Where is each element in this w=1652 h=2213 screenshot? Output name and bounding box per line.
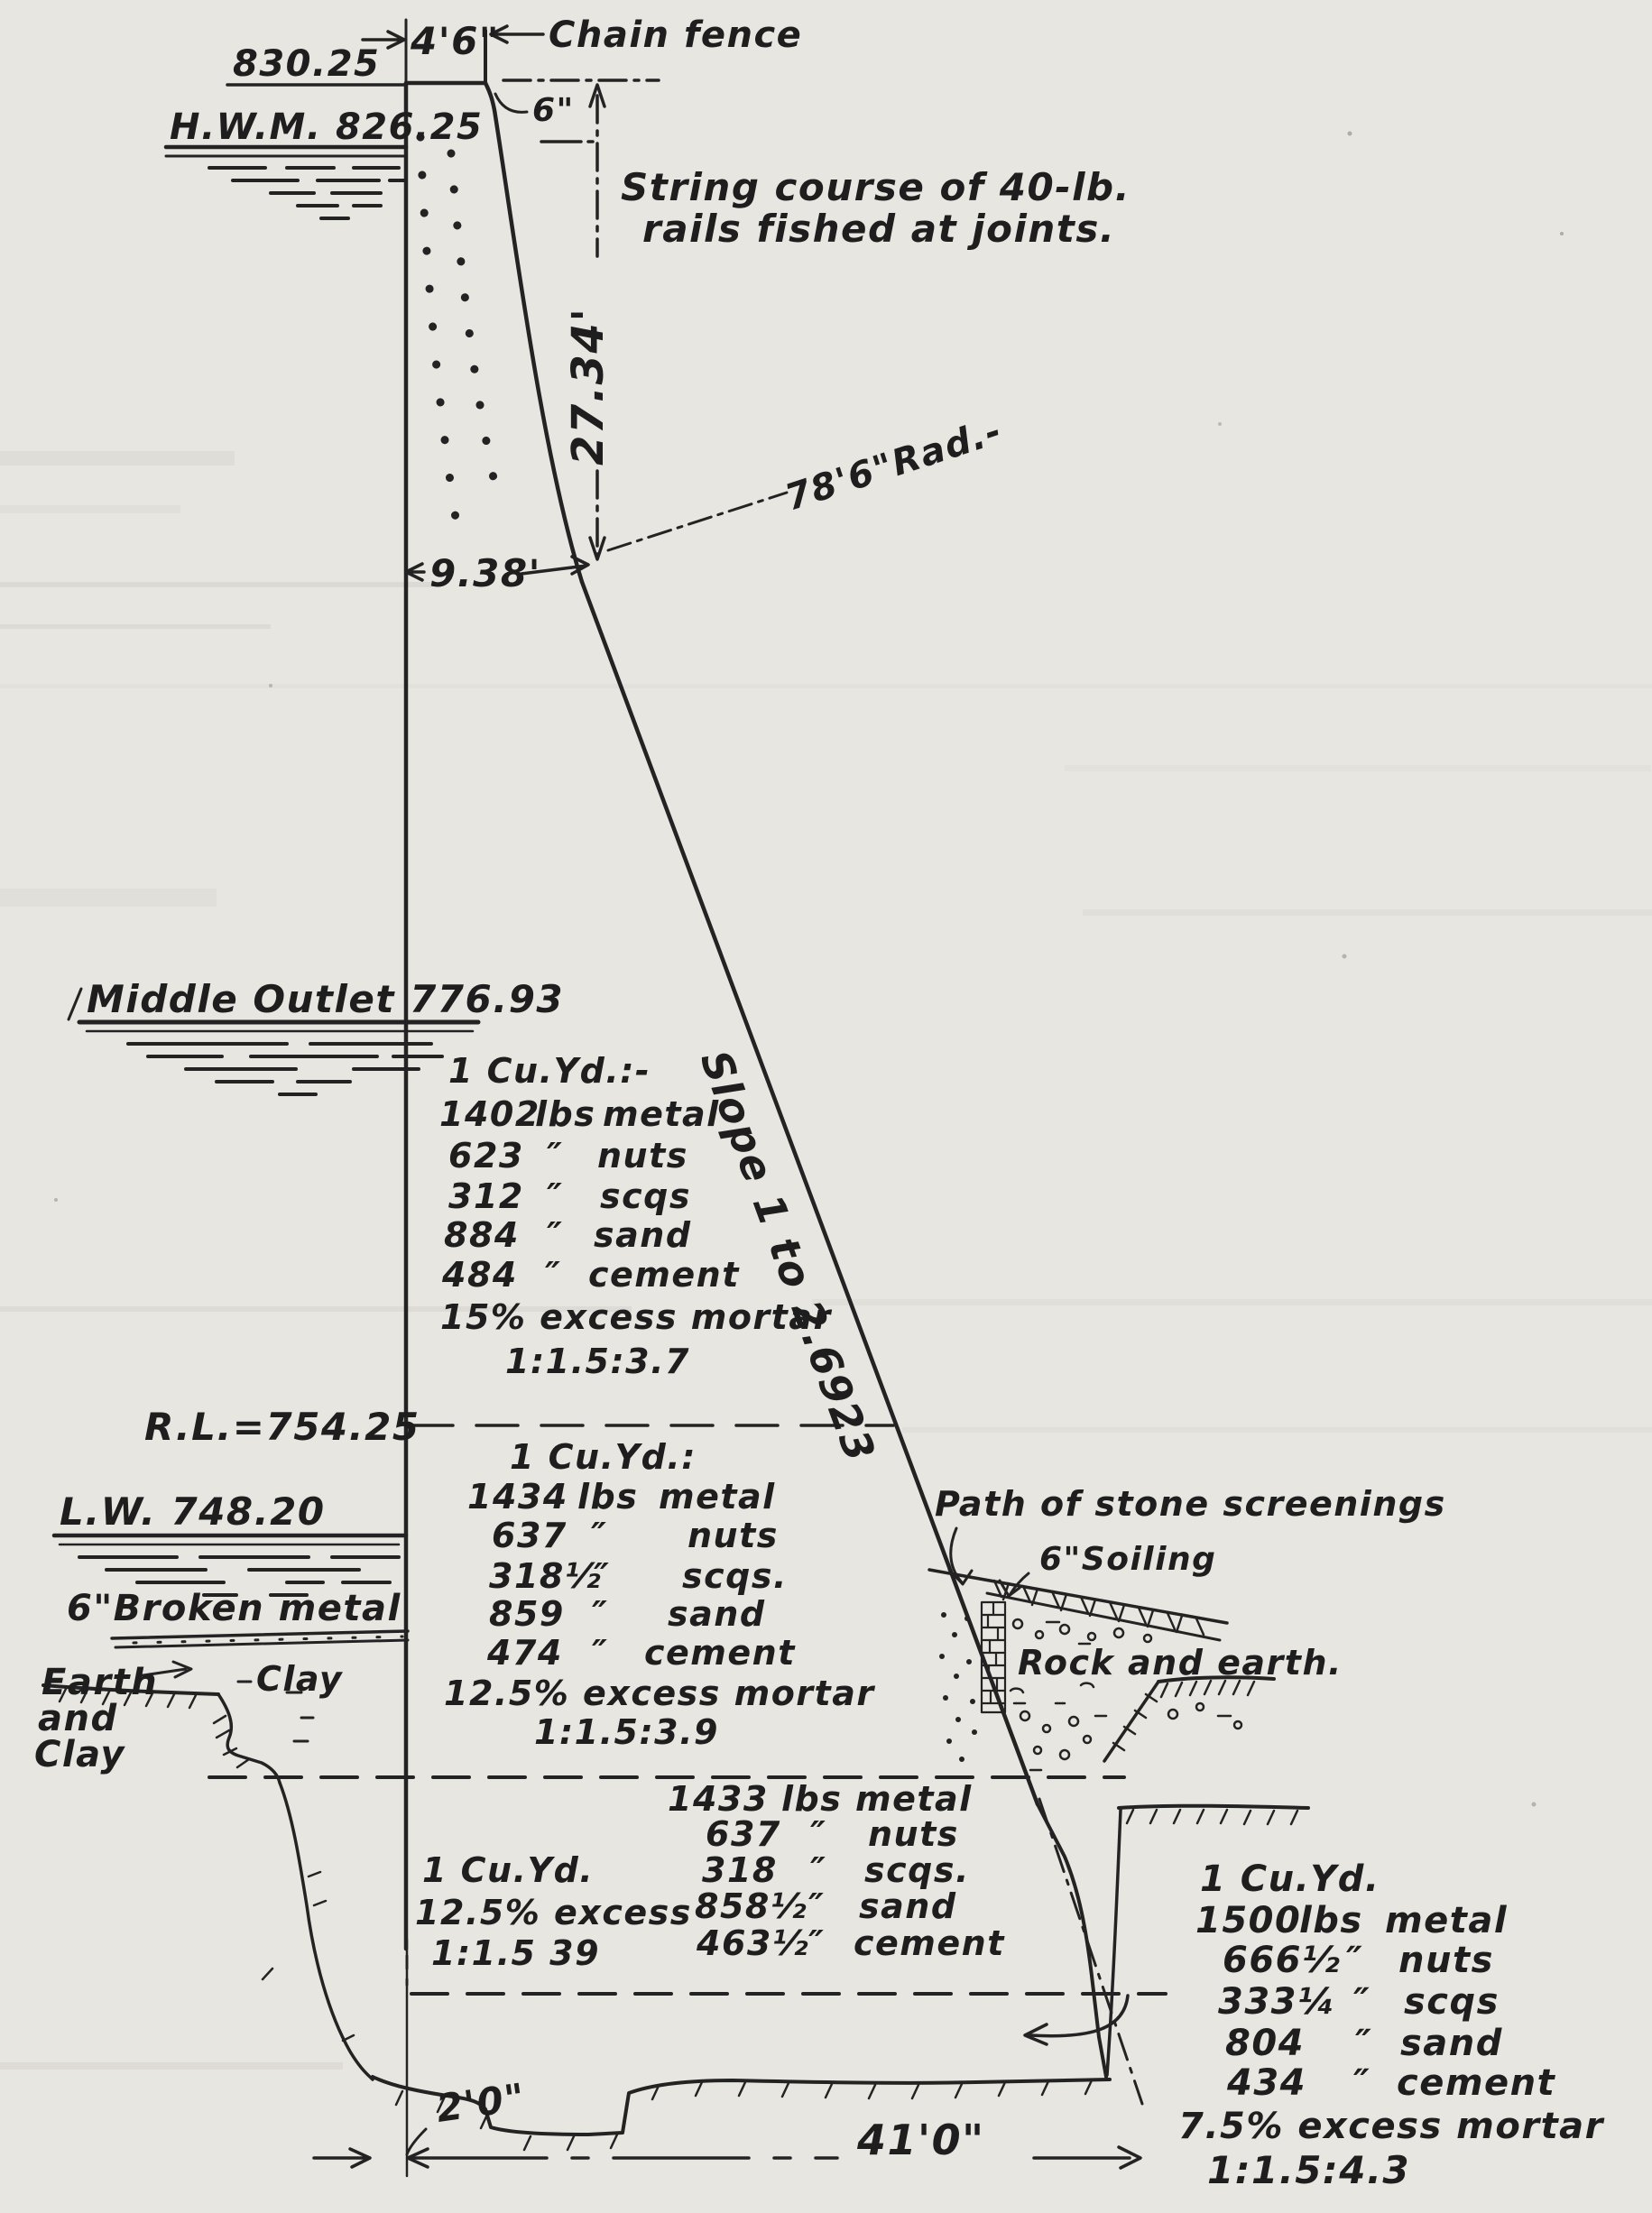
mix5-r2-qty: 333¼: [1218, 1981, 1336, 2023]
mix3-r3-qty: 858½: [695, 1886, 808, 1926]
mix1-r0-qty: 1402: [439, 1094, 540, 1134]
toe-right-ground: [1119, 1806, 1308, 1808]
mix2-r2-qty: 318½: [489, 1556, 602, 1596]
clay-label: Clay: [256, 1659, 344, 1699]
mix2-r0-unit: lbs: [577, 1477, 638, 1517]
mix1-r4-mat: cement: [588, 1255, 740, 1295]
mix1-r4-qty: 484: [441, 1255, 518, 1295]
mix5-r0-unit: lbs: [1299, 1900, 1363, 1941]
mix3-r4-unit: ″: [808, 1923, 825, 1963]
mix3-r1-mat: nuts: [868, 1814, 959, 1854]
rl-label: R.L.=754.25: [144, 1405, 420, 1449]
mix2-ratio: 1:1.5:3.9: [534, 1712, 719, 1752]
mix5-r0-mat: metal: [1385, 1900, 1508, 1941]
mix5-r3-mat: sand: [1400, 2023, 1503, 2064]
mix3-r0-qty: 1433: [668, 1779, 769, 1819]
mix1-r2-qty: 312: [448, 1176, 524, 1216]
mix1-ratio: 1:1.5:3.7: [505, 1342, 690, 1381]
mix3-r4-qty: 463½: [696, 1923, 809, 1963]
mix3-r2-qty: 318: [702, 1850, 778, 1890]
mix3-r3-unit: ″: [808, 1886, 825, 1926]
mix1-r0-unit: lbs: [535, 1094, 595, 1134]
mix2-r4-qty: 474: [486, 1633, 563, 1673]
mix2-r1-qty: 637: [492, 1516, 568, 1555]
mix5-r4-qty: 434: [1226, 2062, 1306, 2104]
mix1-r2-unit: ″: [547, 1176, 563, 1216]
six-inch-label: 6": [532, 92, 575, 129]
mix2-r3-mat: sand: [668, 1594, 766, 1634]
dam-cross-section-drawing: 830.25 H.W.M. 826.25 4'6" Chain fence 6"…: [0, 0, 1652, 2213]
mix1-r3-qty: 884: [444, 1215, 520, 1255]
mix1-r3-mat: sand: [594, 1215, 692, 1255]
mix3-r2-mat: scqs.: [864, 1850, 970, 1890]
rock-earth-label: Rock and earth.: [1018, 1643, 1343, 1683]
string-course-label-2: rails fished at joints.: [642, 207, 1115, 251]
mix4-title: 1 Cu.Yd.: [422, 1850, 594, 1890]
elev-crest-label: 830.25: [233, 43, 380, 85]
mix1-r4-unit: ″: [545, 1255, 561, 1295]
mix2-r0-qty: 1434: [467, 1477, 568, 1517]
crest-width-label: 4'6": [410, 19, 500, 63]
lw-label: L.W. 748.20: [60, 1489, 326, 1534]
mix2-r1-unit: ″: [591, 1516, 607, 1555]
chain-fence-label: Chain fence: [549, 14, 802, 56]
mix4-excess: 12.5% excess: [415, 1893, 692, 1932]
mix2-r4-mat: cement: [644, 1633, 796, 1673]
mix3-r2-unit: ″: [810, 1850, 826, 1890]
mix5-title: 1 Cu.Yd.: [1200, 1858, 1380, 1900]
string-course-label-1: String course of 40-lb.: [621, 165, 1131, 209]
mix1-r2-mat: scqs: [600, 1176, 691, 1216]
mix5-excess: 7.5% excess mortar: [1178, 2106, 1605, 2147]
hwm-label: H.W.M. 826.25: [170, 106, 483, 148]
mix2-title: 1 Cu.Yd.:: [510, 1437, 697, 1477]
middle-outlet-label: Middle Outlet 776.93: [87, 977, 564, 1021]
mix5-r2-unit: ″: [1353, 1981, 1371, 2023]
mix5-r1-unit: ″: [1346, 1940, 1363, 1981]
mix2-r3-qty: 859: [489, 1594, 565, 1634]
mix5-r4-mat: cement: [1397, 2062, 1556, 2104]
soiling-label: 6"Soiling: [1039, 1541, 1216, 1578]
mix3-r0-mat: metal: [855, 1779, 973, 1819]
mix3-r0-unit: lbs: [781, 1779, 842, 1819]
mix4-ratio: 1:1.5 39: [431, 1933, 600, 1973]
mix2-r0-mat: metal: [659, 1477, 776, 1517]
curve-offset-dim-label: 9.38': [429, 551, 541, 595]
mix5-r1-qty: 666½: [1223, 1940, 1341, 1981]
mix2-excess: 12.5% excess mortar: [444, 1674, 875, 1713]
mix5-r1-mat: nuts: [1398, 1940, 1494, 1981]
mix2-r2-mat: scqs.: [682, 1556, 788, 1596]
mix1-r1-qty: 623: [448, 1136, 524, 1176]
curve-height-dim-label: 27.34': [563, 307, 614, 466]
mix1-excess: 15% excess mortar: [440, 1297, 832, 1337]
mix2-r4-unit: ″: [592, 1633, 608, 1673]
mix1-r3-unit: ″: [547, 1215, 563, 1255]
mix5-r4-unit: ″: [1353, 2062, 1371, 2104]
mix1-title: 1 Cu.Yd.:-: [448, 1051, 651, 1091]
mix5-r3-qty: 804: [1225, 2023, 1305, 2064]
mix2-r3-unit: ″: [592, 1594, 608, 1634]
mix5-r3-unit: ″: [1355, 2023, 1372, 2064]
mix3-r1-qty: 637: [706, 1814, 781, 1854]
mix5-r0-qty: 1500: [1195, 1900, 1301, 1941]
base-width-label: 41'0": [856, 2116, 985, 2164]
mix3-r1-unit: ″: [810, 1814, 826, 1854]
mix1-r0-mat: metal: [603, 1094, 720, 1134]
mix3-r3-mat: sand: [859, 1886, 957, 1926]
mix1-r1-unit: ″: [547, 1136, 563, 1176]
mix3-r4-mat: cement: [854, 1923, 1005, 1963]
mix5-ratio: 1:1.5:4.3: [1207, 2148, 1410, 2192]
earth-label-3: Clay: [34, 1734, 125, 1775]
path-stone-label: Path of stone screenings: [935, 1484, 1446, 1524]
drawing-page: 830.25 H.W.M. 826.25 4'6" Chain fence 6"…: [0, 0, 1652, 2213]
mix2-r1-mat: nuts: [688, 1516, 779, 1555]
mix1-r1-mat: nuts: [597, 1136, 688, 1176]
mix2-r2-unit: ″: [594, 1556, 610, 1596]
mix5-r2-mat: scqs: [1404, 1981, 1500, 2023]
broken-metal-label: 6"Broken metal: [67, 1588, 401, 1629]
